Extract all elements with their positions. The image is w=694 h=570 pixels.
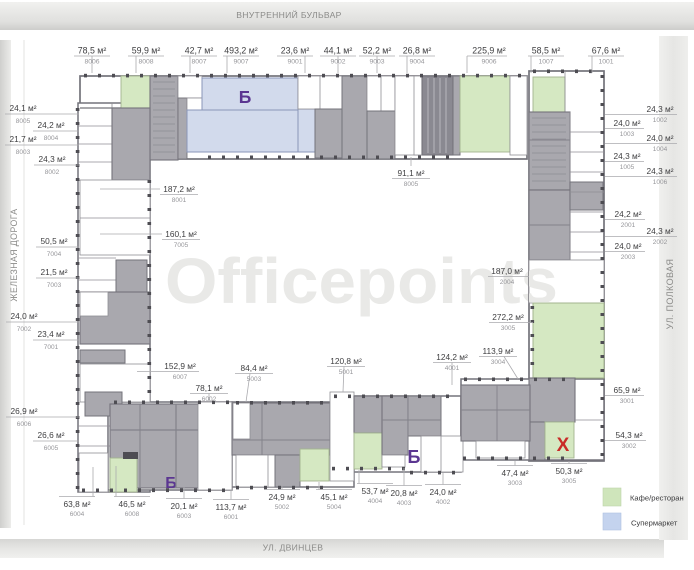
svg-text:9007: 9007 [233, 59, 248, 66]
svg-text:23,4 м²: 23,4 м² [38, 329, 65, 339]
svg-text:4004: 4004 [368, 498, 383, 505]
svg-text:26,8 м²: 26,8 м² [403, 46, 432, 56]
svg-text:84,4 м²: 84,4 м² [241, 363, 268, 373]
svg-text:8001: 8001 [172, 197, 187, 204]
svg-text:78,5 м²: 78,5 м² [78, 46, 107, 56]
svg-text:24,0 м²: 24,0 м² [614, 118, 641, 128]
svg-text:24,0 м²: 24,0 м² [430, 487, 457, 497]
svg-text:24,9 м²: 24,9 м² [269, 492, 296, 502]
svg-text:1003: 1003 [620, 131, 635, 138]
svg-text:67,6 м²: 67,6 м² [592, 46, 621, 56]
svg-text:1007: 1007 [538, 59, 553, 66]
svg-text:24,2 м²: 24,2 м² [615, 209, 642, 219]
svg-text:6008: 6008 [125, 511, 140, 518]
svg-text:УЛ. ПОЛКОВАЯ: УЛ. ПОЛКОВАЯ [665, 259, 675, 330]
svg-text:45,1 м²: 45,1 м² [321, 492, 348, 502]
svg-text:23,6 м²: 23,6 м² [281, 46, 310, 56]
svg-text:160,1 м²: 160,1 м² [165, 229, 197, 239]
svg-text:7001: 7001 [44, 344, 59, 351]
svg-text:3003: 3003 [508, 480, 523, 487]
svg-text:8003: 8003 [16, 149, 31, 156]
svg-text:24,0 м²: 24,0 м² [11, 311, 38, 321]
svg-text:6003: 6003 [177, 513, 192, 520]
svg-text:20,1 м²: 20,1 м² [171, 501, 198, 511]
svg-text:46,5 м²: 46,5 м² [119, 499, 146, 509]
svg-text:26,6 м²: 26,6 м² [38, 430, 65, 440]
svg-text:7003: 7003 [47, 282, 62, 289]
svg-text:3005: 3005 [562, 478, 577, 485]
svg-text:6004: 6004 [70, 511, 85, 518]
svg-text:4002: 4002 [436, 499, 451, 506]
svg-text:24,3 м²: 24,3 м² [647, 226, 674, 236]
svg-text:7005: 7005 [174, 242, 189, 249]
svg-text:78,1 м²: 78,1 м² [196, 383, 223, 393]
svg-text:Супермаркет: Супермаркет [631, 519, 678, 528]
svg-text:3002: 3002 [622, 443, 637, 450]
svg-text:21,5 м²: 21,5 м² [41, 267, 68, 277]
svg-text:ВНУТРЕННИЙ БУЛЬВАР: ВНУТРЕННИЙ БУЛЬВАР [236, 9, 341, 20]
svg-text:6001: 6001 [224, 514, 239, 521]
svg-text:2002: 2002 [653, 239, 668, 246]
svg-text:Б: Б [408, 447, 421, 467]
svg-text:5004: 5004 [327, 504, 342, 511]
svg-text:7004: 7004 [47, 251, 62, 258]
svg-text:8005: 8005 [404, 181, 419, 188]
svg-text:2001: 2001 [621, 222, 636, 229]
svg-text:50,3 м²: 50,3 м² [556, 466, 583, 476]
svg-text:8007: 8007 [191, 59, 206, 66]
svg-text:54,3 м²: 54,3 м² [616, 430, 643, 440]
svg-text:120,8 м²: 120,8 м² [330, 356, 362, 366]
svg-text:493,2 м²: 493,2 м² [224, 46, 258, 56]
svg-text:52,2 м²: 52,2 м² [363, 46, 392, 56]
svg-text:152,9 м²: 152,9 м² [164, 361, 196, 371]
svg-text:9004: 9004 [409, 59, 424, 66]
svg-text:59,9 м²: 59,9 м² [132, 46, 161, 56]
svg-text:3004: 3004 [491, 359, 506, 366]
svg-text:187,0 м²: 187,0 м² [491, 266, 523, 276]
svg-text:21,7 м²: 21,7 м² [10, 134, 37, 144]
svg-text:24,0 м²: 24,0 м² [647, 133, 674, 143]
svg-text:44,1 м²: 44,1 м² [324, 46, 353, 56]
svg-text:5001: 5001 [339, 369, 354, 376]
svg-text:3005: 3005 [501, 325, 516, 332]
svg-text:24,1 м²: 24,1 м² [10, 103, 37, 113]
svg-text:1005: 1005 [620, 164, 635, 171]
svg-text:9001: 9001 [287, 59, 302, 66]
svg-text:1002: 1002 [653, 117, 668, 124]
svg-text:6007: 6007 [173, 374, 188, 381]
svg-text:113,7 м²: 113,7 м² [216, 502, 247, 512]
svg-text:50,5 м²: 50,5 м² [41, 236, 68, 246]
svg-text:Х: Х [557, 435, 570, 456]
svg-text:8005: 8005 [16, 118, 31, 125]
svg-text:63,8 м²: 63,8 м² [64, 499, 91, 509]
svg-text:24,2 м²: 24,2 м² [38, 120, 65, 130]
svg-text:24,0 м²: 24,0 м² [615, 241, 642, 251]
svg-text:24,3 м²: 24,3 м² [647, 104, 674, 114]
svg-text:5002: 5002 [275, 504, 290, 511]
svg-text:65,9 м²: 65,9 м² [614, 385, 641, 395]
svg-text:9006: 9006 [481, 59, 496, 66]
svg-text:7002: 7002 [17, 326, 32, 333]
svg-text:Кафе/ресторан: Кафе/ресторан [630, 494, 684, 503]
svg-text:53,7 м²: 53,7 м² [362, 486, 389, 496]
svg-text:2003: 2003 [621, 254, 636, 261]
svg-text:24,3 м²: 24,3 м² [614, 151, 641, 161]
svg-text:91,1 м²: 91,1 м² [398, 168, 425, 178]
svg-text:6005: 6005 [44, 445, 59, 452]
svg-text:20,8 м²: 20,8 м² [391, 488, 418, 498]
svg-text:272,2 м²: 272,2 м² [492, 312, 524, 322]
svg-text:8004: 8004 [44, 135, 59, 142]
svg-text:1001: 1001 [598, 59, 613, 66]
svg-text:187,2 м²: 187,2 м² [163, 184, 195, 194]
svg-text:8002: 8002 [45, 169, 60, 176]
svg-text:Б: Б [239, 87, 252, 107]
svg-text:1004: 1004 [653, 146, 668, 153]
svg-text:113,9 м²: 113,9 м² [483, 346, 514, 356]
svg-text:3001: 3001 [620, 398, 635, 405]
svg-text:24,3 м²: 24,3 м² [39, 154, 66, 164]
svg-text:8008: 8008 [138, 59, 153, 66]
svg-text:УЛ. ДВИНЦЕВ: УЛ. ДВИНЦЕВ [263, 543, 324, 553]
svg-text:24,3 м²: 24,3 м² [647, 166, 674, 176]
svg-text:47,4 м²: 47,4 м² [502, 468, 529, 478]
svg-text:2004: 2004 [500, 279, 515, 286]
svg-text:ЖЕЛЕЗНАЯ ДОРОГА: ЖЕЛЕЗНАЯ ДОРОГА [9, 208, 19, 301]
svg-text:4003: 4003 [397, 500, 412, 507]
svg-text:124,2 м²: 124,2 м² [436, 352, 468, 362]
svg-text:1006: 1006 [653, 179, 668, 186]
svg-text:26,9 м²: 26,9 м² [11, 406, 38, 416]
svg-text:42,7 м²: 42,7 м² [185, 46, 214, 56]
svg-text:58,5 м²: 58,5 м² [532, 46, 561, 56]
svg-text:225,9 м²: 225,9 м² [472, 46, 506, 56]
svg-text:6006: 6006 [17, 421, 32, 428]
